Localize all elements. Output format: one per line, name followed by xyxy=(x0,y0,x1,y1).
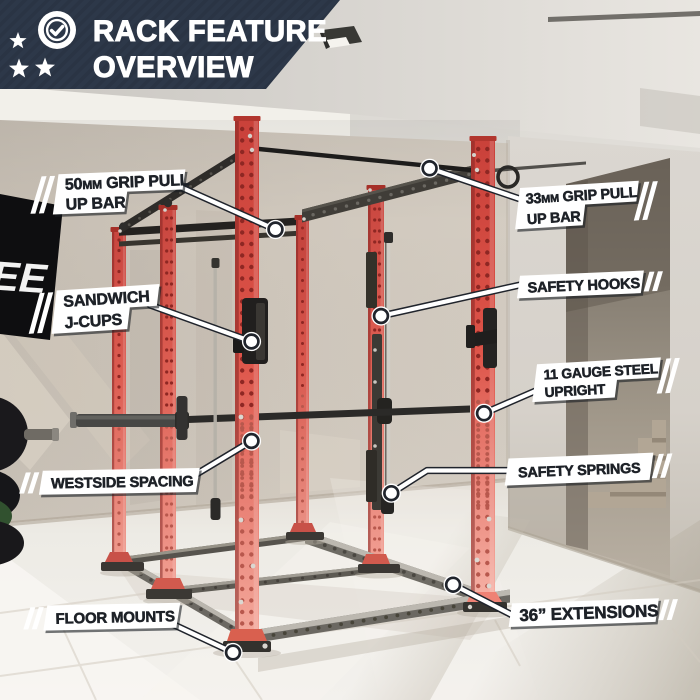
svg-text:UP BAR: UP BAR xyxy=(526,209,581,228)
svg-text:UP BAR: UP BAR xyxy=(65,194,126,213)
svg-text:OVERVIEW: OVERVIEW xyxy=(93,52,254,84)
svg-text:RACK FEATURE: RACK FEATURE xyxy=(93,16,327,48)
svg-text:J-CUPS: J-CUPS xyxy=(64,312,123,333)
svg-text:WESTSIDE SPACING: WESTSIDE SPACING xyxy=(51,474,194,492)
svg-text:FLOOR MOUNTS: FLOOR MOUNTS xyxy=(55,608,175,627)
